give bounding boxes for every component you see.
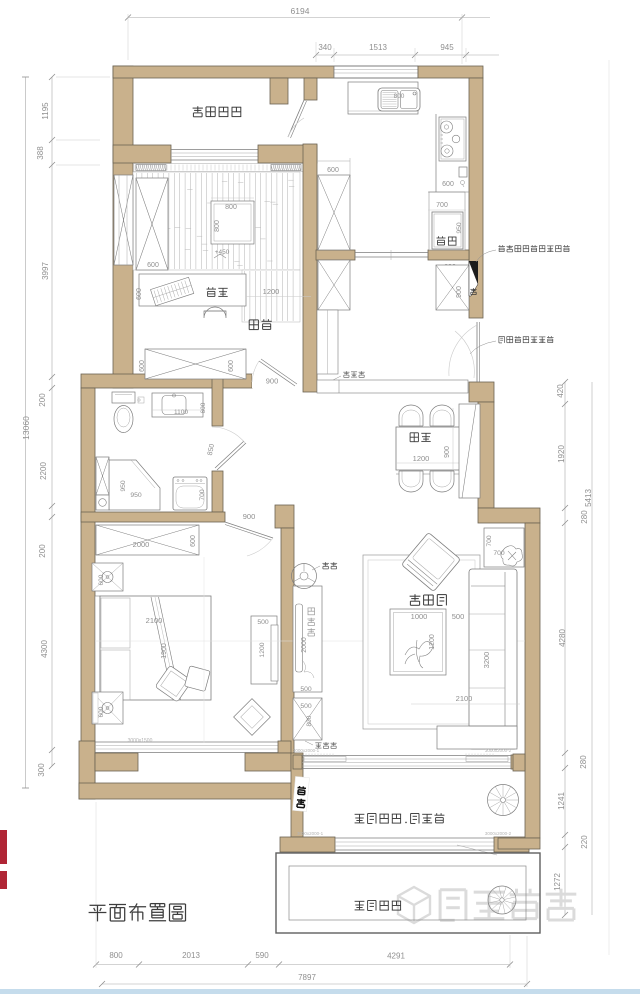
svg-text:500: 500 (257, 619, 269, 626)
svg-text:200: 200 (38, 544, 47, 558)
svg-text:700: 700 (493, 550, 505, 557)
svg-text:1195: 1195 (41, 102, 50, 120)
svg-text:3000x2000-2: 3000x2000-2 (485, 831, 512, 836)
svg-text:4291: 4291 (387, 952, 405, 961)
svg-text:280: 280 (579, 755, 588, 769)
svg-text:500: 500 (300, 703, 312, 710)
svg-text:2000: 2000 (133, 540, 150, 549)
svg-text:3000x2000-2: 3000x2000-2 (485, 748, 512, 753)
svg-text:1200: 1200 (413, 454, 430, 463)
svg-text:340: 340 (318, 43, 332, 52)
svg-text:1272: 1272 (553, 873, 562, 891)
svg-text:900: 900 (266, 377, 279, 386)
svg-text:+450: +450 (215, 249, 230, 256)
svg-text:2100: 2100 (456, 694, 473, 703)
svg-text:1200: 1200 (263, 287, 280, 296)
svg-text:700: 700 (199, 489, 206, 501)
svg-text:2013: 2013 (182, 951, 200, 960)
svg-text:1200: 1200 (429, 634, 436, 650)
svg-text:800: 800 (214, 220, 221, 232)
svg-text:388: 388 (36, 146, 45, 160)
svg-text:1000: 1000 (411, 612, 428, 621)
svg-text:600: 600 (327, 167, 339, 174)
svg-text:800: 800 (306, 715, 313, 726)
svg-text:950: 950 (130, 492, 142, 499)
svg-text:900: 900 (444, 446, 451, 458)
svg-text:900: 900 (243, 512, 256, 521)
svg-text:1100: 1100 (174, 409, 188, 416)
svg-text:6194: 6194 (291, 6, 310, 16)
svg-text:600: 600 (200, 402, 207, 413)
svg-text:1200: 1200 (259, 642, 266, 657)
svg-text:600: 600 (228, 360, 235, 372)
svg-text:4300: 4300 (40, 640, 49, 658)
svg-text:2200: 2200 (39, 462, 48, 480)
svg-text:500: 500 (300, 686, 312, 693)
svg-text:1900: 1900 (161, 643, 168, 659)
svg-text:900: 900 (456, 286, 463, 298)
svg-text:600: 600 (147, 262, 159, 269)
svg-text:590: 590 (255, 951, 269, 960)
svg-text:950: 950 (456, 222, 463, 234)
svg-text:600: 600 (98, 574, 105, 585)
svg-text:600: 600 (442, 181, 454, 188)
svg-text:3000x2000-1: 3000x2000-1 (297, 831, 324, 836)
svg-text:5413: 5413 (584, 489, 593, 507)
svg-text:2100: 2100 (146, 616, 163, 625)
svg-text:800: 800 (394, 93, 405, 100)
svg-text:700: 700 (436, 202, 448, 209)
svg-text:200: 200 (38, 393, 47, 407)
svg-text:600: 600 (136, 288, 143, 300)
svg-text:3000x2000-1: 3000x2000-1 (293, 748, 320, 753)
svg-text:7897: 7897 (298, 973, 316, 982)
svg-text:945: 945 (440, 43, 454, 52)
svg-text:3997: 3997 (41, 262, 50, 280)
svg-text:3200: 3200 (482, 652, 491, 669)
svg-text:1920: 1920 (557, 445, 566, 463)
svg-text:1241: 1241 (557, 792, 566, 810)
svg-text:800: 800 (225, 204, 237, 211)
svg-text:500: 500 (452, 612, 465, 621)
svg-text:13060: 13060 (21, 416, 31, 440)
svg-text:1513: 1513 (369, 43, 387, 52)
svg-text:280: 280 (580, 510, 589, 524)
svg-text:700: 700 (486, 535, 493, 547)
svg-text:300: 300 (37, 763, 46, 777)
svg-text:600: 600 (190, 535, 197, 547)
svg-text:3000x1500: 3000x1500 (128, 738, 153, 744)
svg-text:600: 600 (98, 706, 105, 717)
svg-text:4280: 4280 (558, 629, 567, 647)
svg-text:800: 800 (109, 951, 123, 960)
svg-text:420: 420 (556, 384, 565, 398)
svg-text:600: 600 (139, 360, 146, 372)
svg-text:950: 950 (120, 480, 127, 492)
svg-text:2000: 2000 (301, 637, 308, 653)
svg-text:220: 220 (580, 835, 589, 849)
